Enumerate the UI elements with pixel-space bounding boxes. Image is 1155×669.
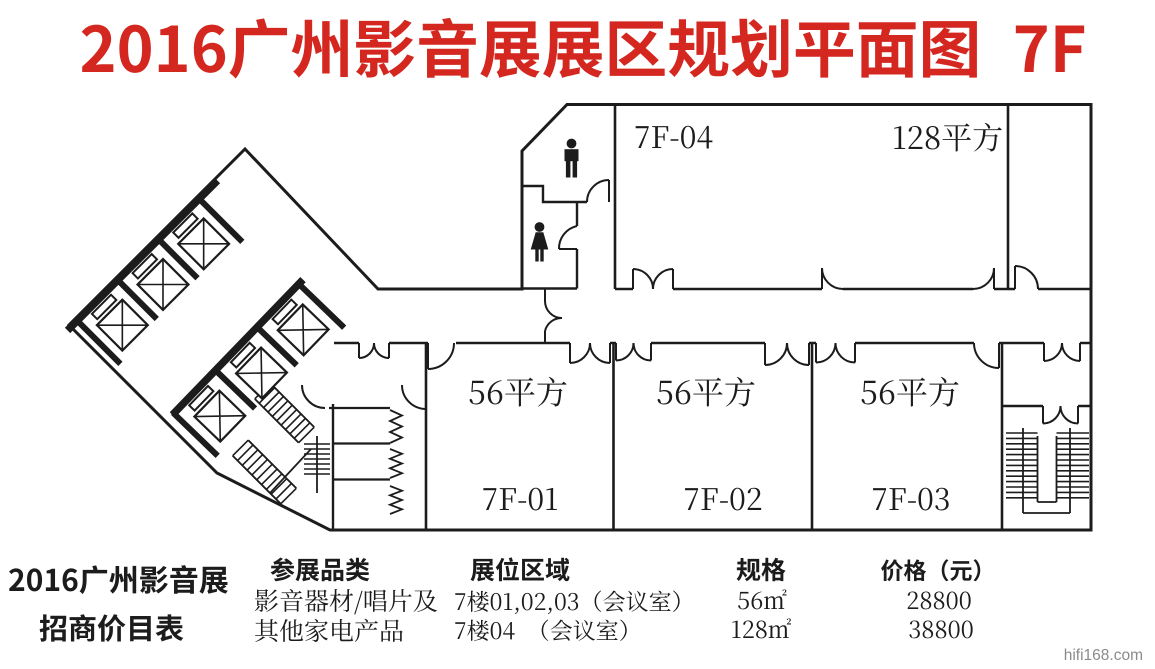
svg-text:hifi168.com: hifi168.com [1064,647,1143,664]
